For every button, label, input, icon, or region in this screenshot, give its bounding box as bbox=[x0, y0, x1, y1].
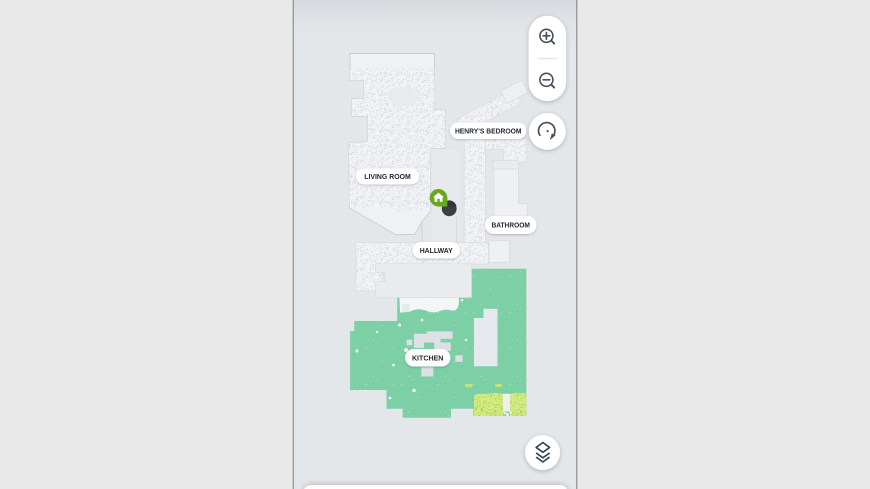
svg-text:LIVING ROOM: LIVING ROOM bbox=[364, 172, 411, 181]
svg-text:HENRY'S BEDROOM: HENRY'S BEDROOM bbox=[455, 126, 522, 135]
svg-text:HALLWAY: HALLWAY bbox=[420, 246, 453, 255]
svg-text:BATHROOM: BATHROOM bbox=[491, 221, 530, 230]
svg-text:KITCHEN: KITCHEN bbox=[412, 353, 444, 362]
